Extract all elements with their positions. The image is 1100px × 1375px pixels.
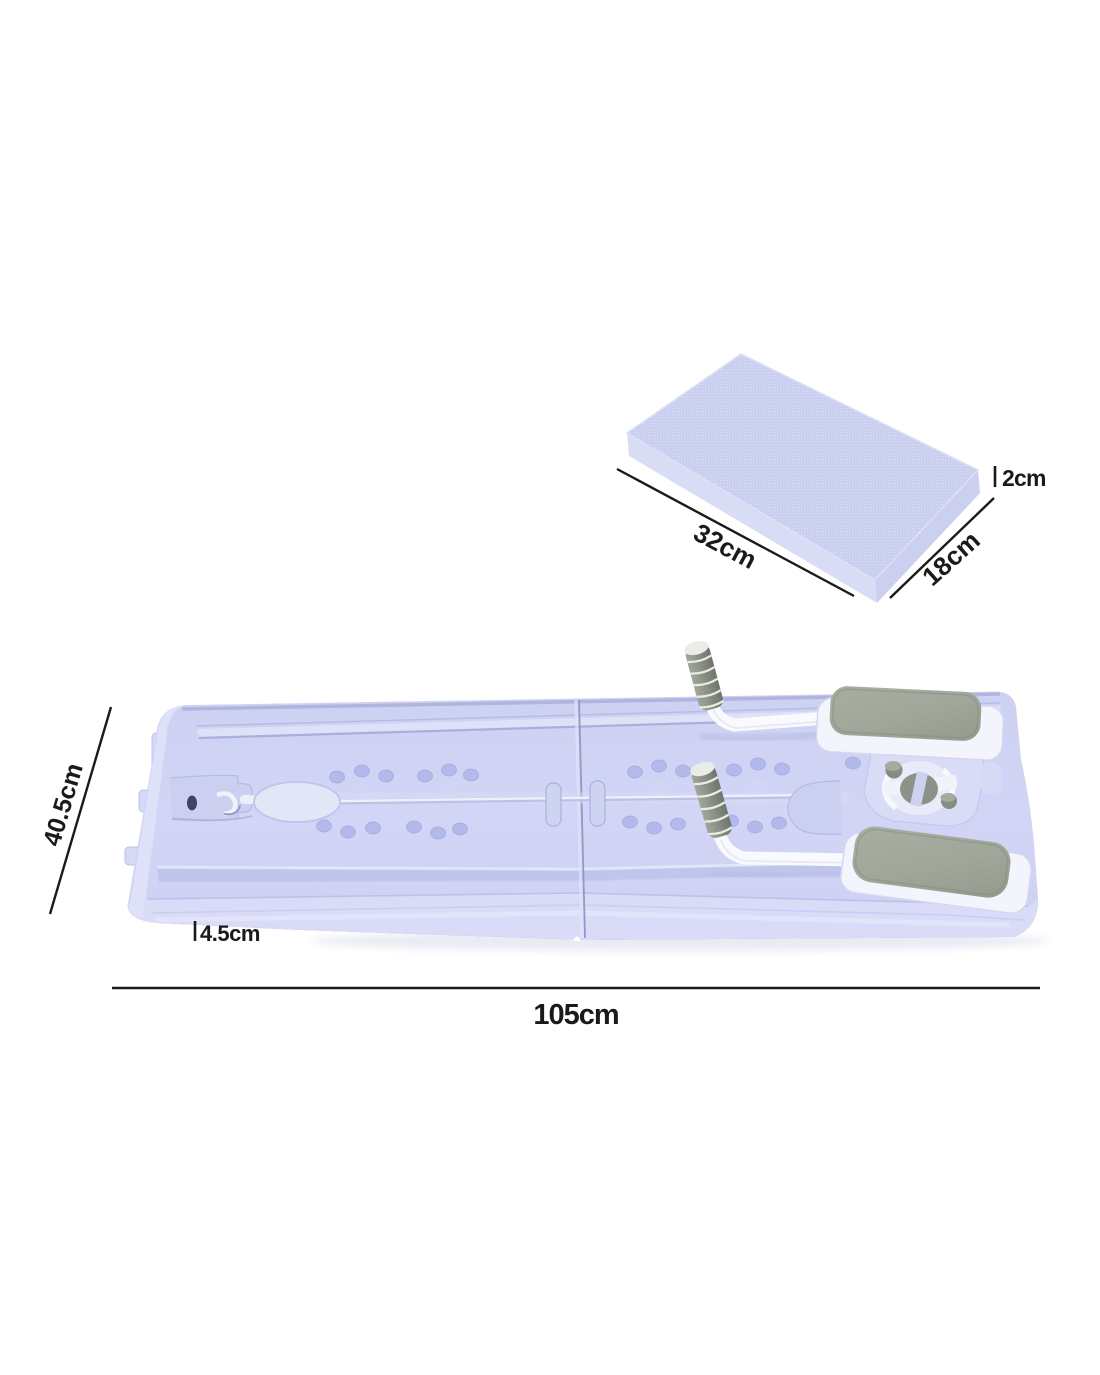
svg-text:2cm: 2cm [1002,465,1046,491]
svg-text:105cm: 105cm [533,999,618,1031]
svg-text:4.5cm: 4.5cm [200,921,260,946]
